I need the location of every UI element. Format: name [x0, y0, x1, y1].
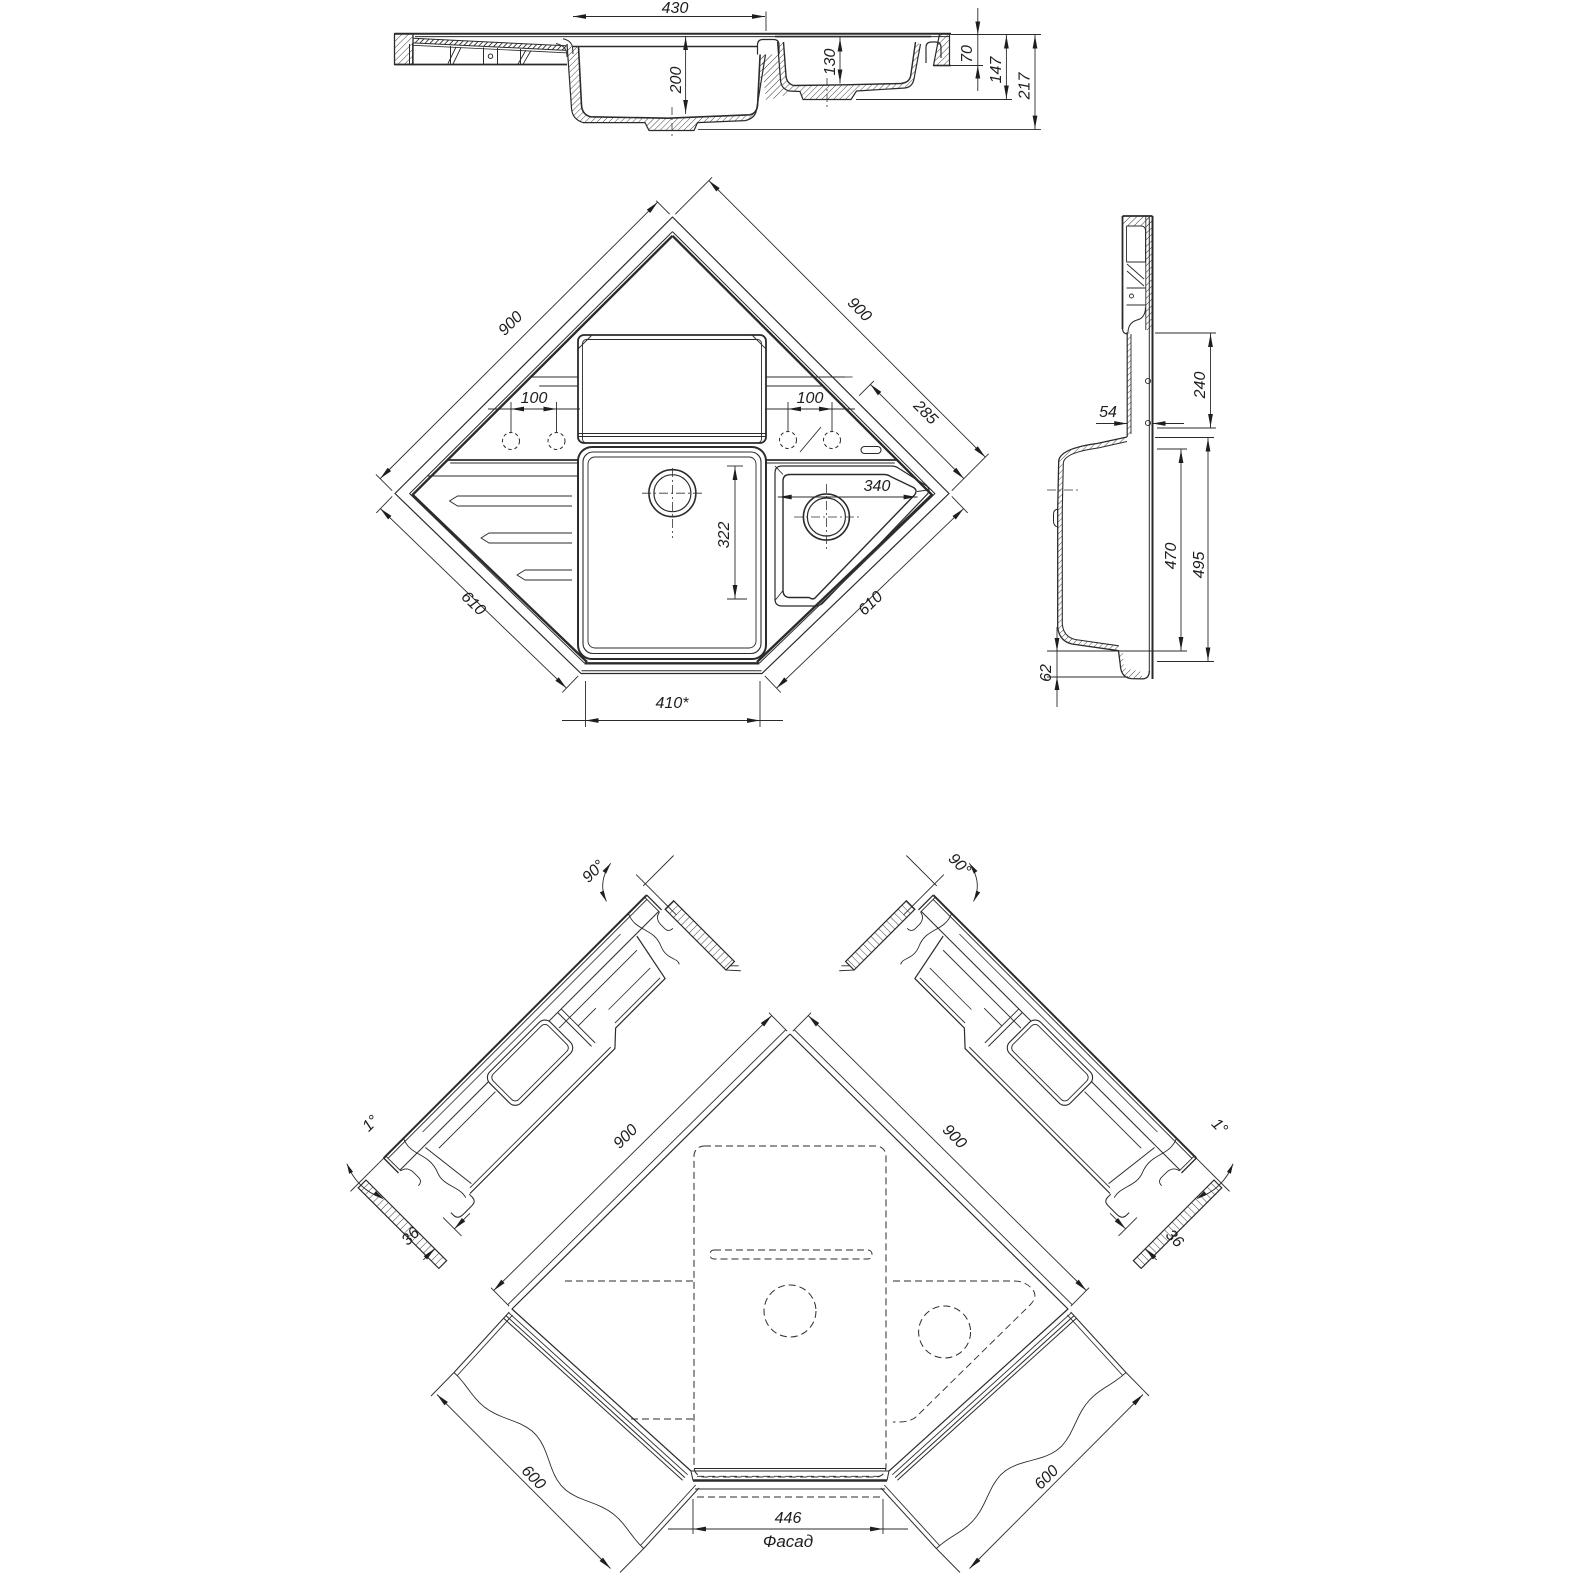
svg-text:54: 54 [1099, 404, 1117, 421]
svg-text:217: 217 [1017, 72, 1034, 101]
svg-text:430: 430 [662, 0, 689, 17]
svg-text:495: 495 [1191, 552, 1208, 579]
svg-text:147: 147 [988, 56, 1005, 84]
svg-text:340: 340 [864, 478, 891, 495]
svg-text:322: 322 [716, 522, 733, 549]
svg-text:62: 62 [1038, 664, 1055, 682]
svg-text:240: 240 [1192, 372, 1209, 400]
svg-text:100: 100 [797, 390, 824, 407]
svg-text:100: 100 [521, 390, 548, 407]
svg-text:200: 200 [668, 67, 685, 95]
svg-text:446: 446 [775, 1510, 802, 1527]
svg-text:Фасад: Фасад [763, 1532, 813, 1551]
svg-text:70: 70 [959, 45, 976, 63]
svg-text:410*: 410* [656, 695, 690, 712]
svg-text:470: 470 [1163, 543, 1180, 570]
svg-text:130: 130 [822, 49, 839, 76]
